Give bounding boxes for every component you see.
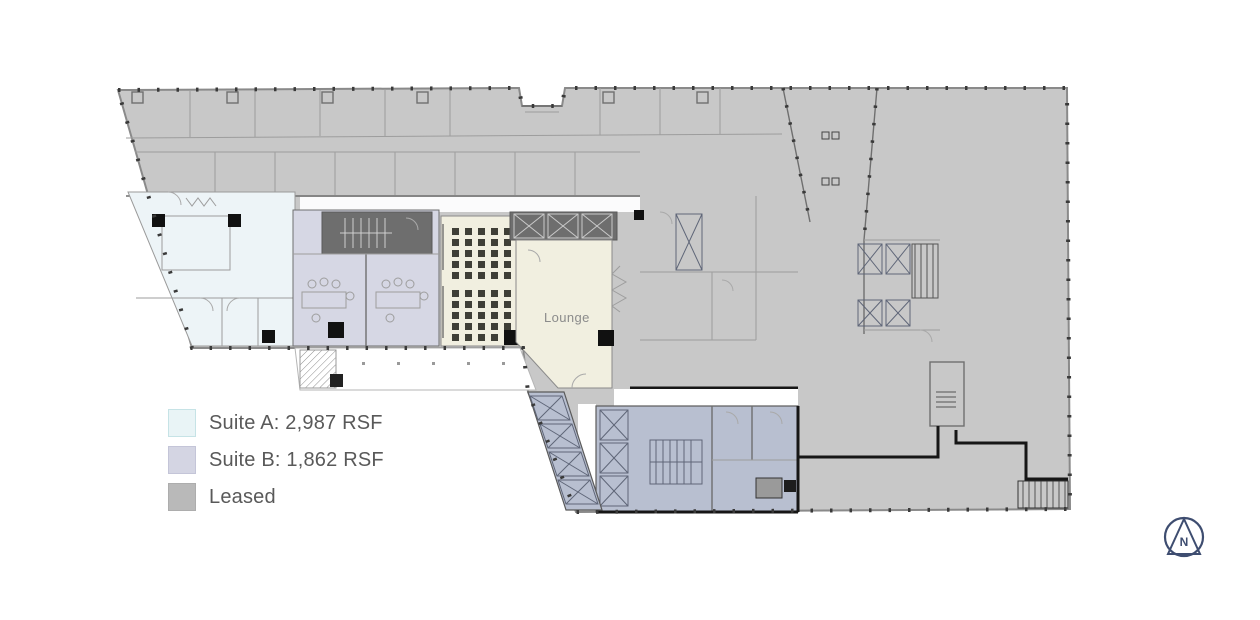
elevator-lobby [510, 212, 617, 240]
legend-swatch-suite-a [168, 409, 196, 437]
floor-plan: Lounge [0, 0, 1260, 620]
terrace [295, 348, 536, 390]
legend: Suite A: 2,987 RSF Suite B: 1,862 RSF Le… [168, 409, 384, 520]
conference-room [441, 216, 520, 346]
legend-label-leased: Leased [209, 486, 276, 509]
legend-label-suite-a: Suite A: 2,987 RSF [209, 412, 383, 435]
lightwell [614, 389, 798, 406]
north-arrow-icon: N [1160, 513, 1208, 561]
legend-swatch-leased [168, 483, 196, 511]
lounge-label: Lounge [544, 310, 590, 325]
building-core [596, 406, 798, 512]
legend-row-suite-a: Suite A: 2,987 RSF [168, 409, 384, 437]
floor-plan-canvas: Lounge [0, 0, 1260, 620]
page: { "floor_plan": { "lounge_label": "Loung… [0, 0, 1260, 620]
legend-row-leased: Leased [168, 483, 384, 511]
suite-a-area [128, 192, 295, 346]
legend-row-suite-b: Suite B: 1,862 RSF [168, 446, 384, 474]
legend-label-suite-b: Suite B: 1,862 RSF [209, 449, 384, 472]
suite-b-area [293, 210, 439, 346]
legend-swatch-suite-b [168, 446, 196, 474]
north-letter: N [1180, 535, 1189, 549]
